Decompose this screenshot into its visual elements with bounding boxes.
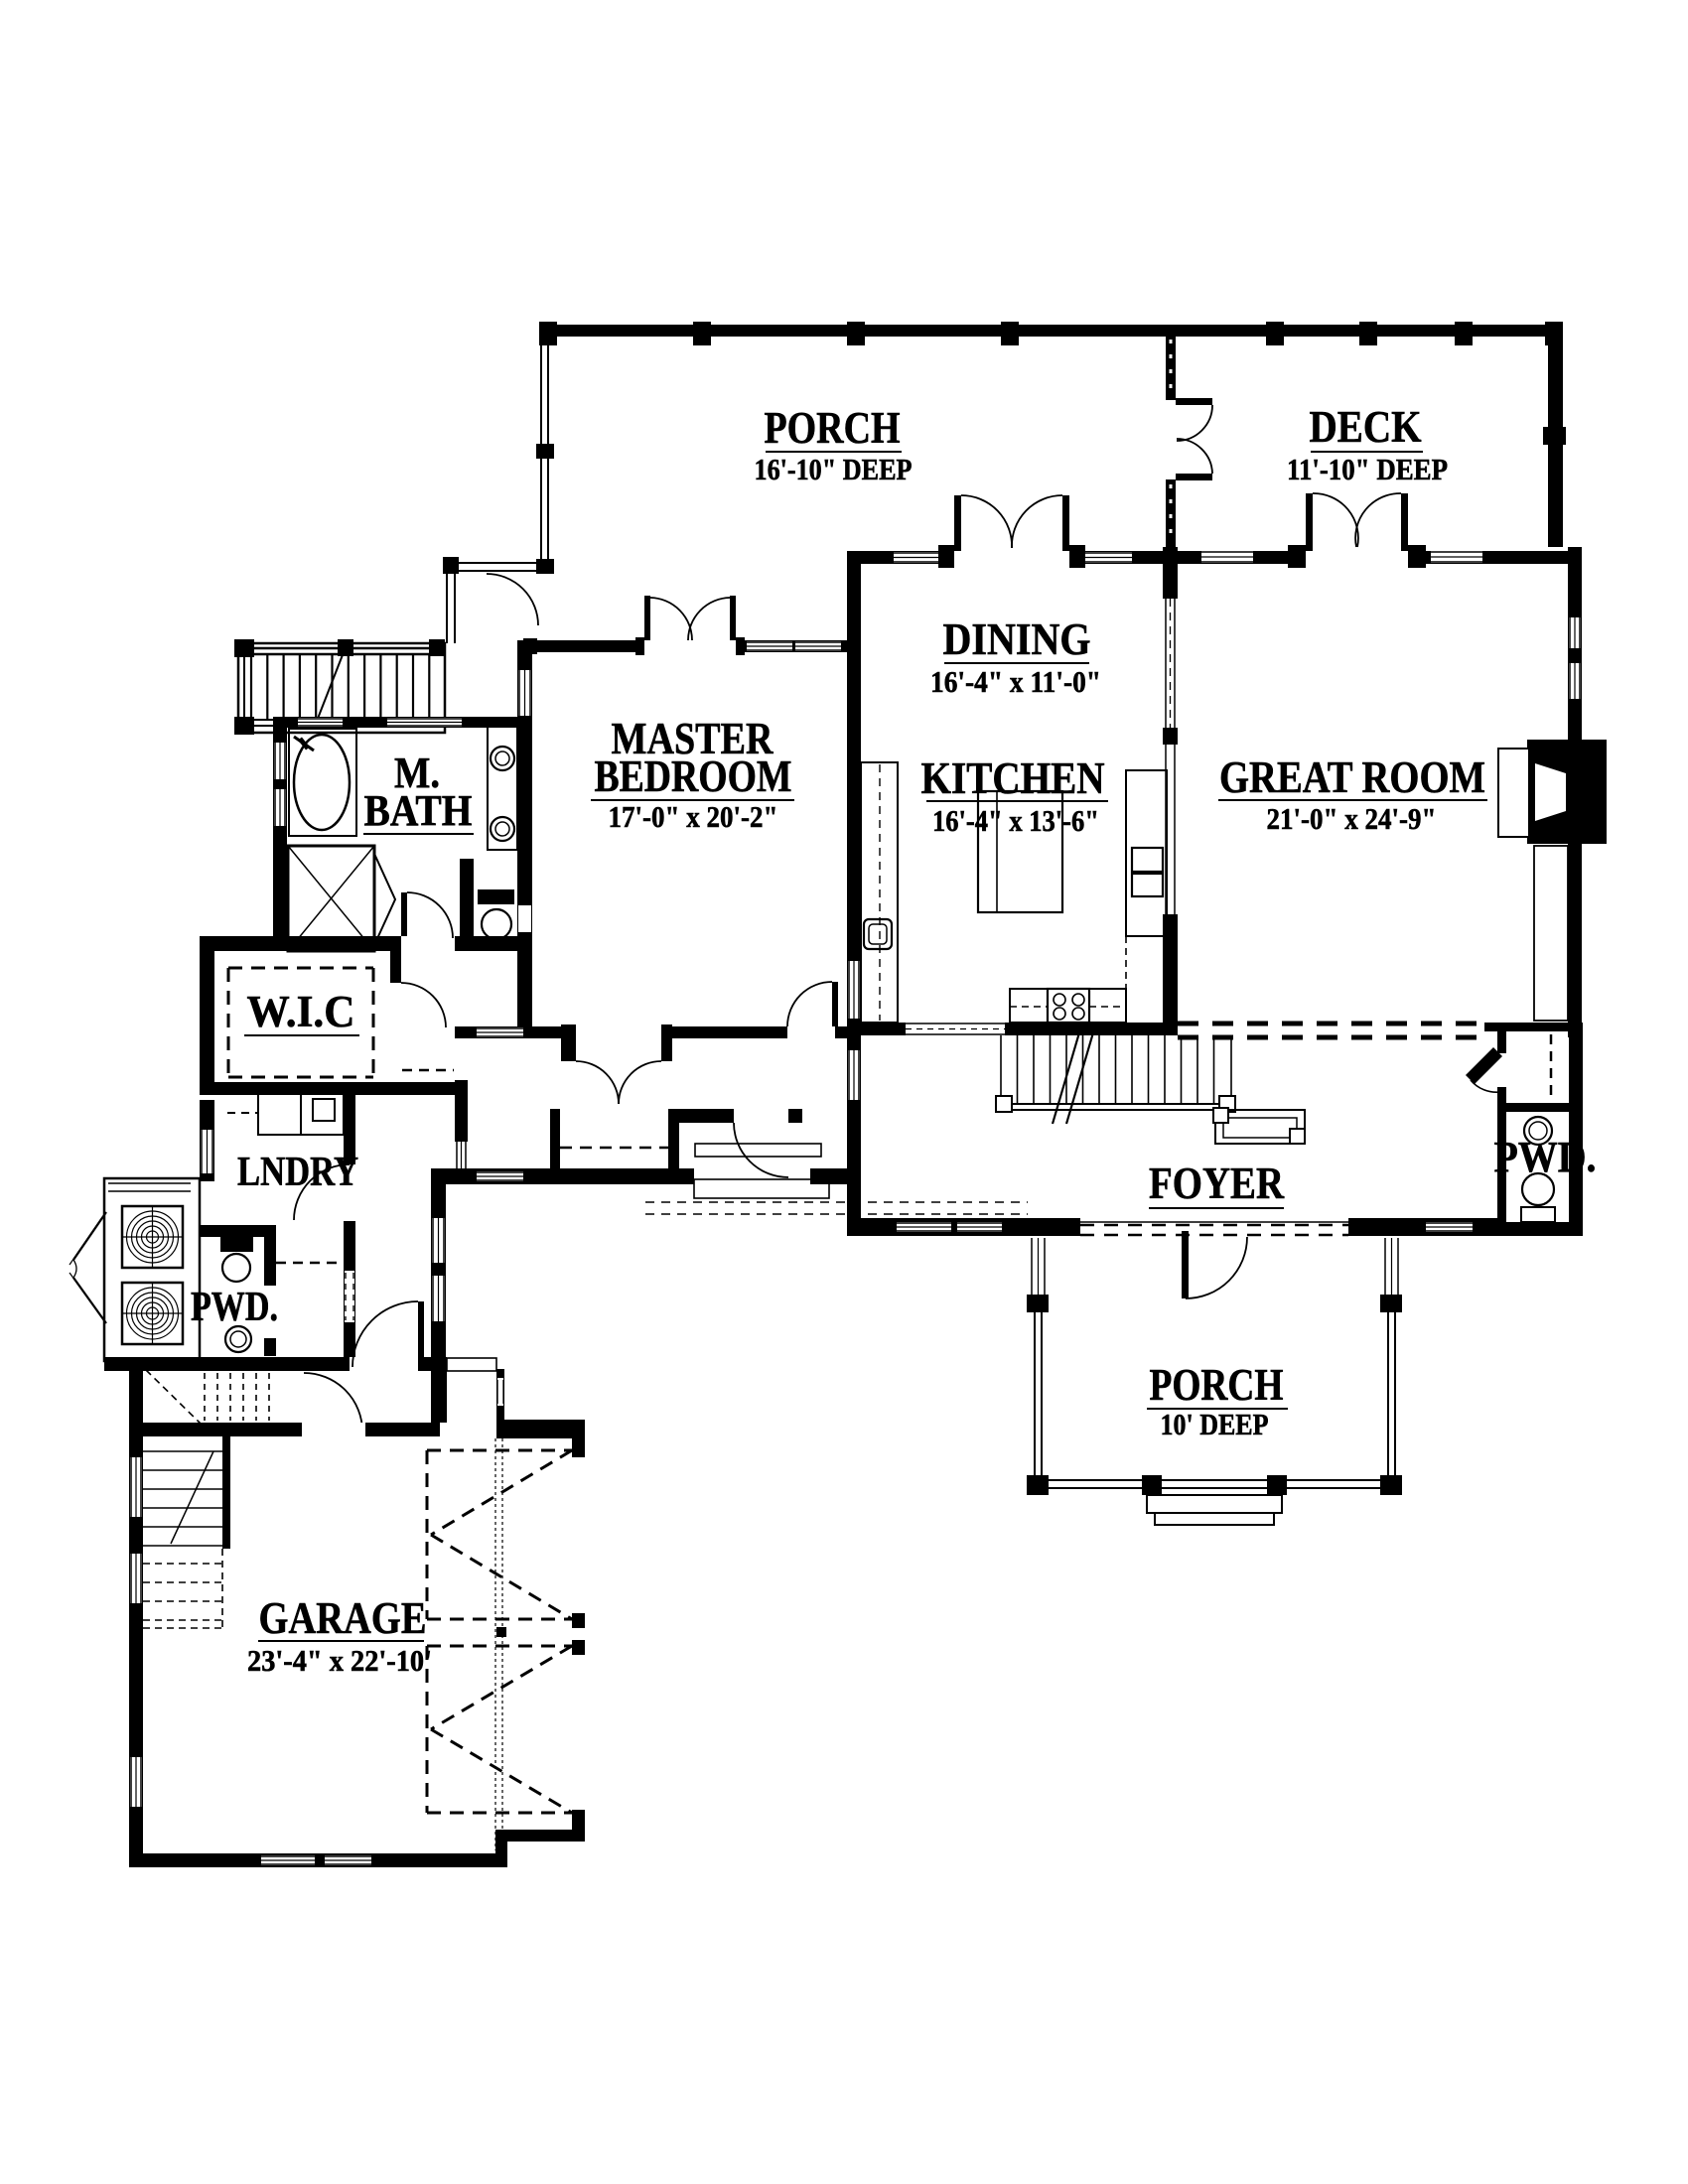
svg-text:11'-10" DEEP: 11'-10" DEEP: [1287, 452, 1448, 486]
svg-text:16'-4" x 11'-0": 16'-4" x 11'-0": [930, 664, 1101, 699]
svg-text:W.I.C: W.I.C: [247, 987, 355, 1036]
svg-text:PWD.: PWD.: [191, 1285, 278, 1330]
svg-text:16'-4" x 13'-6": 16'-4" x 13'-6": [932, 803, 1099, 838]
svg-text:PORCH: PORCH: [1150, 1360, 1284, 1410]
svg-text:16'-10" DEEP: 16'-10" DEEP: [755, 452, 913, 486]
svg-text:FOYER: FOYER: [1149, 1159, 1284, 1208]
svg-text:PORCH: PORCH: [765, 403, 901, 453]
svg-text:GREAT ROOM: GREAT ROOM: [1219, 751, 1485, 802]
svg-text:PWD.: PWD.: [1494, 1133, 1597, 1181]
svg-text:KITCHEN: KITCHEN: [921, 752, 1105, 803]
svg-text:LNDRY: LNDRY: [237, 1150, 358, 1195]
svg-text:BATH: BATH: [364, 786, 473, 835]
svg-text:21'-0" x 24'-9": 21'-0" x 24'-9": [1267, 801, 1437, 836]
svg-text:10' DEEP: 10' DEEP: [1161, 1407, 1269, 1441]
svg-text:GARAGE: GARAGE: [259, 1592, 427, 1643]
svg-text:17'-0" x 20'-2": 17'-0" x 20'-2": [609, 799, 778, 834]
svg-text:DINING: DINING: [943, 614, 1091, 664]
svg-text:23'-4" x 22'-10': 23'-4" x 22'-10': [247, 1643, 432, 1678]
svg-text:BEDROOM: BEDROOM: [595, 751, 792, 801]
svg-text:DECK: DECK: [1310, 402, 1422, 452]
